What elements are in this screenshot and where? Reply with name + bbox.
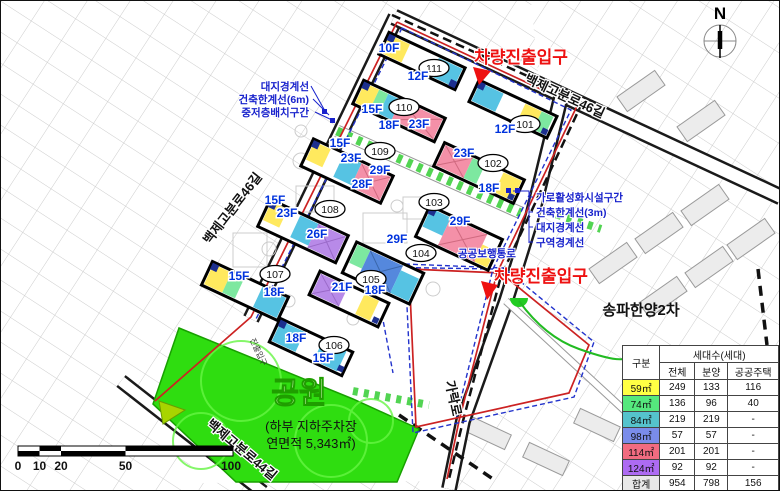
floor-label: 12F [408, 69, 429, 83]
building-number: 107 [266, 269, 284, 281]
cell-sale: 798 [695, 476, 728, 491]
floor-label: 18F [286, 331, 307, 345]
annotation-right: 건축한계선(3m) [536, 206, 606, 219]
cell-total: 92 [660, 460, 695, 476]
building-number: 104 [412, 248, 430, 260]
cell-sale: 96 [695, 396, 728, 412]
floor-label: 18F [379, 118, 400, 132]
annotation-left: 중저층배치구간 [241, 106, 309, 119]
scale-tick: 10 [33, 459, 47, 473]
floor-label: 15F [362, 102, 383, 116]
cell-sale: 201 [695, 444, 728, 460]
cell-total: 249 [660, 380, 695, 396]
row-label: 114㎡ [623, 444, 660, 460]
table-header-public: 공공주택 [728, 363, 779, 380]
scale-tick: 100 [221, 459, 241, 473]
scale-tick: 0 [15, 459, 22, 473]
table-row: 98㎡ 57 57 - [623, 428, 779, 444]
cell-total: 201 [660, 444, 695, 460]
floor-label: 21F [332, 280, 353, 294]
table-header-group: 구분 [623, 346, 660, 380]
row-label: 합계 [623, 476, 660, 491]
building-number: 101 [516, 119, 534, 131]
table-header-total: 전체 [660, 363, 695, 380]
floor-label: 10F [379, 41, 400, 55]
floor-label: 29F [370, 163, 391, 177]
cell-sale: 219 [695, 412, 728, 428]
table-row: 59㎡ 249 133 116 [623, 380, 779, 396]
north-label: N [714, 4, 726, 23]
cell-total: 57 [660, 428, 695, 444]
floor-label: 28F [352, 177, 373, 191]
cell-public: 116 [728, 380, 779, 396]
table-row: 74㎡ 136 96 40 [623, 396, 779, 412]
annotation-right: 가로활성화시설구간 [536, 191, 623, 204]
building-number: 110 [396, 102, 413, 114]
annotation-right: 대지경계선 [536, 221, 584, 234]
floor-label: 15F [330, 136, 351, 150]
annotation-right: 구역경계선 [536, 236, 584, 249]
scale-tick: 50 [119, 459, 133, 473]
floor-label: 26F [307, 227, 328, 241]
unit-count-table: 구분 세대수(세대) 전체 분양 공공주택 59㎡ 249 133 116 74… [622, 345, 779, 491]
building-number: 109 [371, 146, 389, 158]
svg-text:차량진출입구: 차량진출입구 [494, 267, 588, 286]
cell-total: 136 [660, 396, 695, 412]
cell-public: - [728, 428, 779, 444]
cell-total: 219 [660, 412, 695, 428]
floor-label: 29F [387, 232, 408, 246]
site-plan-map: 101 102 103 104 105 106 107 108 109 110 … [0, 0, 780, 491]
table-row: 84㎡ 219 219 - [623, 412, 779, 428]
floor-label: 18F [479, 181, 500, 195]
floor-label: 18F [264, 285, 285, 299]
building-number: 108 [321, 204, 339, 216]
row-label: 98㎡ [623, 428, 660, 444]
table-row-total: 합계 954 798 156 [623, 476, 779, 491]
svg-text:차량진출입구: 차량진출입구 [474, 48, 568, 67]
annotation-left: 건축한계선(6m) [239, 93, 309, 106]
walkway-label: 공공보행통로 [458, 247, 516, 260]
cell-public: - [728, 460, 779, 476]
neighbor-label: 송파한양2차 [602, 302, 680, 319]
floor-label: 23F [454, 146, 475, 160]
building-number: 102 [484, 158, 502, 170]
cell-public: - [728, 412, 779, 428]
cell-sale: 133 [695, 380, 728, 396]
table-row: 124㎡ 92 92 - [623, 460, 779, 476]
cell-sale: 92 [695, 460, 728, 476]
park-name: 공원 [271, 377, 326, 410]
park-sub2: 연면적 5,343㎡) [266, 436, 355, 451]
floor-label: 29F [450, 214, 471, 228]
row-label: 124㎡ [623, 460, 660, 476]
annotation-left: 대지경계선 [261, 80, 309, 93]
building-number: 103 [425, 197, 443, 209]
floor-label: 18F [365, 283, 386, 297]
row-label: 84㎡ [623, 412, 660, 428]
floor-label: 23F [341, 151, 362, 165]
cell-total: 954 [660, 476, 695, 491]
table-header-units: 세대수(세대) [660, 346, 779, 363]
floor-label: 23F [409, 117, 430, 131]
cell-public: - [728, 444, 779, 460]
cell-sale: 57 [695, 428, 728, 444]
row-label: 74㎡ [623, 396, 660, 412]
table-header-sale: 분양 [695, 363, 728, 380]
floor-label: 23F [277, 206, 298, 220]
floor-label: 15F [313, 351, 334, 365]
park-sub1: (하부 지하주차장 [265, 419, 357, 434]
scale-tick: 20 [54, 459, 68, 473]
floor-label: 12F [495, 122, 516, 136]
row-label: 59㎡ [623, 380, 660, 396]
cell-public: 40 [728, 396, 779, 412]
floor-label: 15F [229, 269, 250, 283]
table-row: 114㎡ 201 201 - [623, 444, 779, 460]
floor-label: 15F [265, 193, 286, 207]
cell-public: 156 [728, 476, 779, 491]
building-number: 111 [426, 63, 442, 75]
